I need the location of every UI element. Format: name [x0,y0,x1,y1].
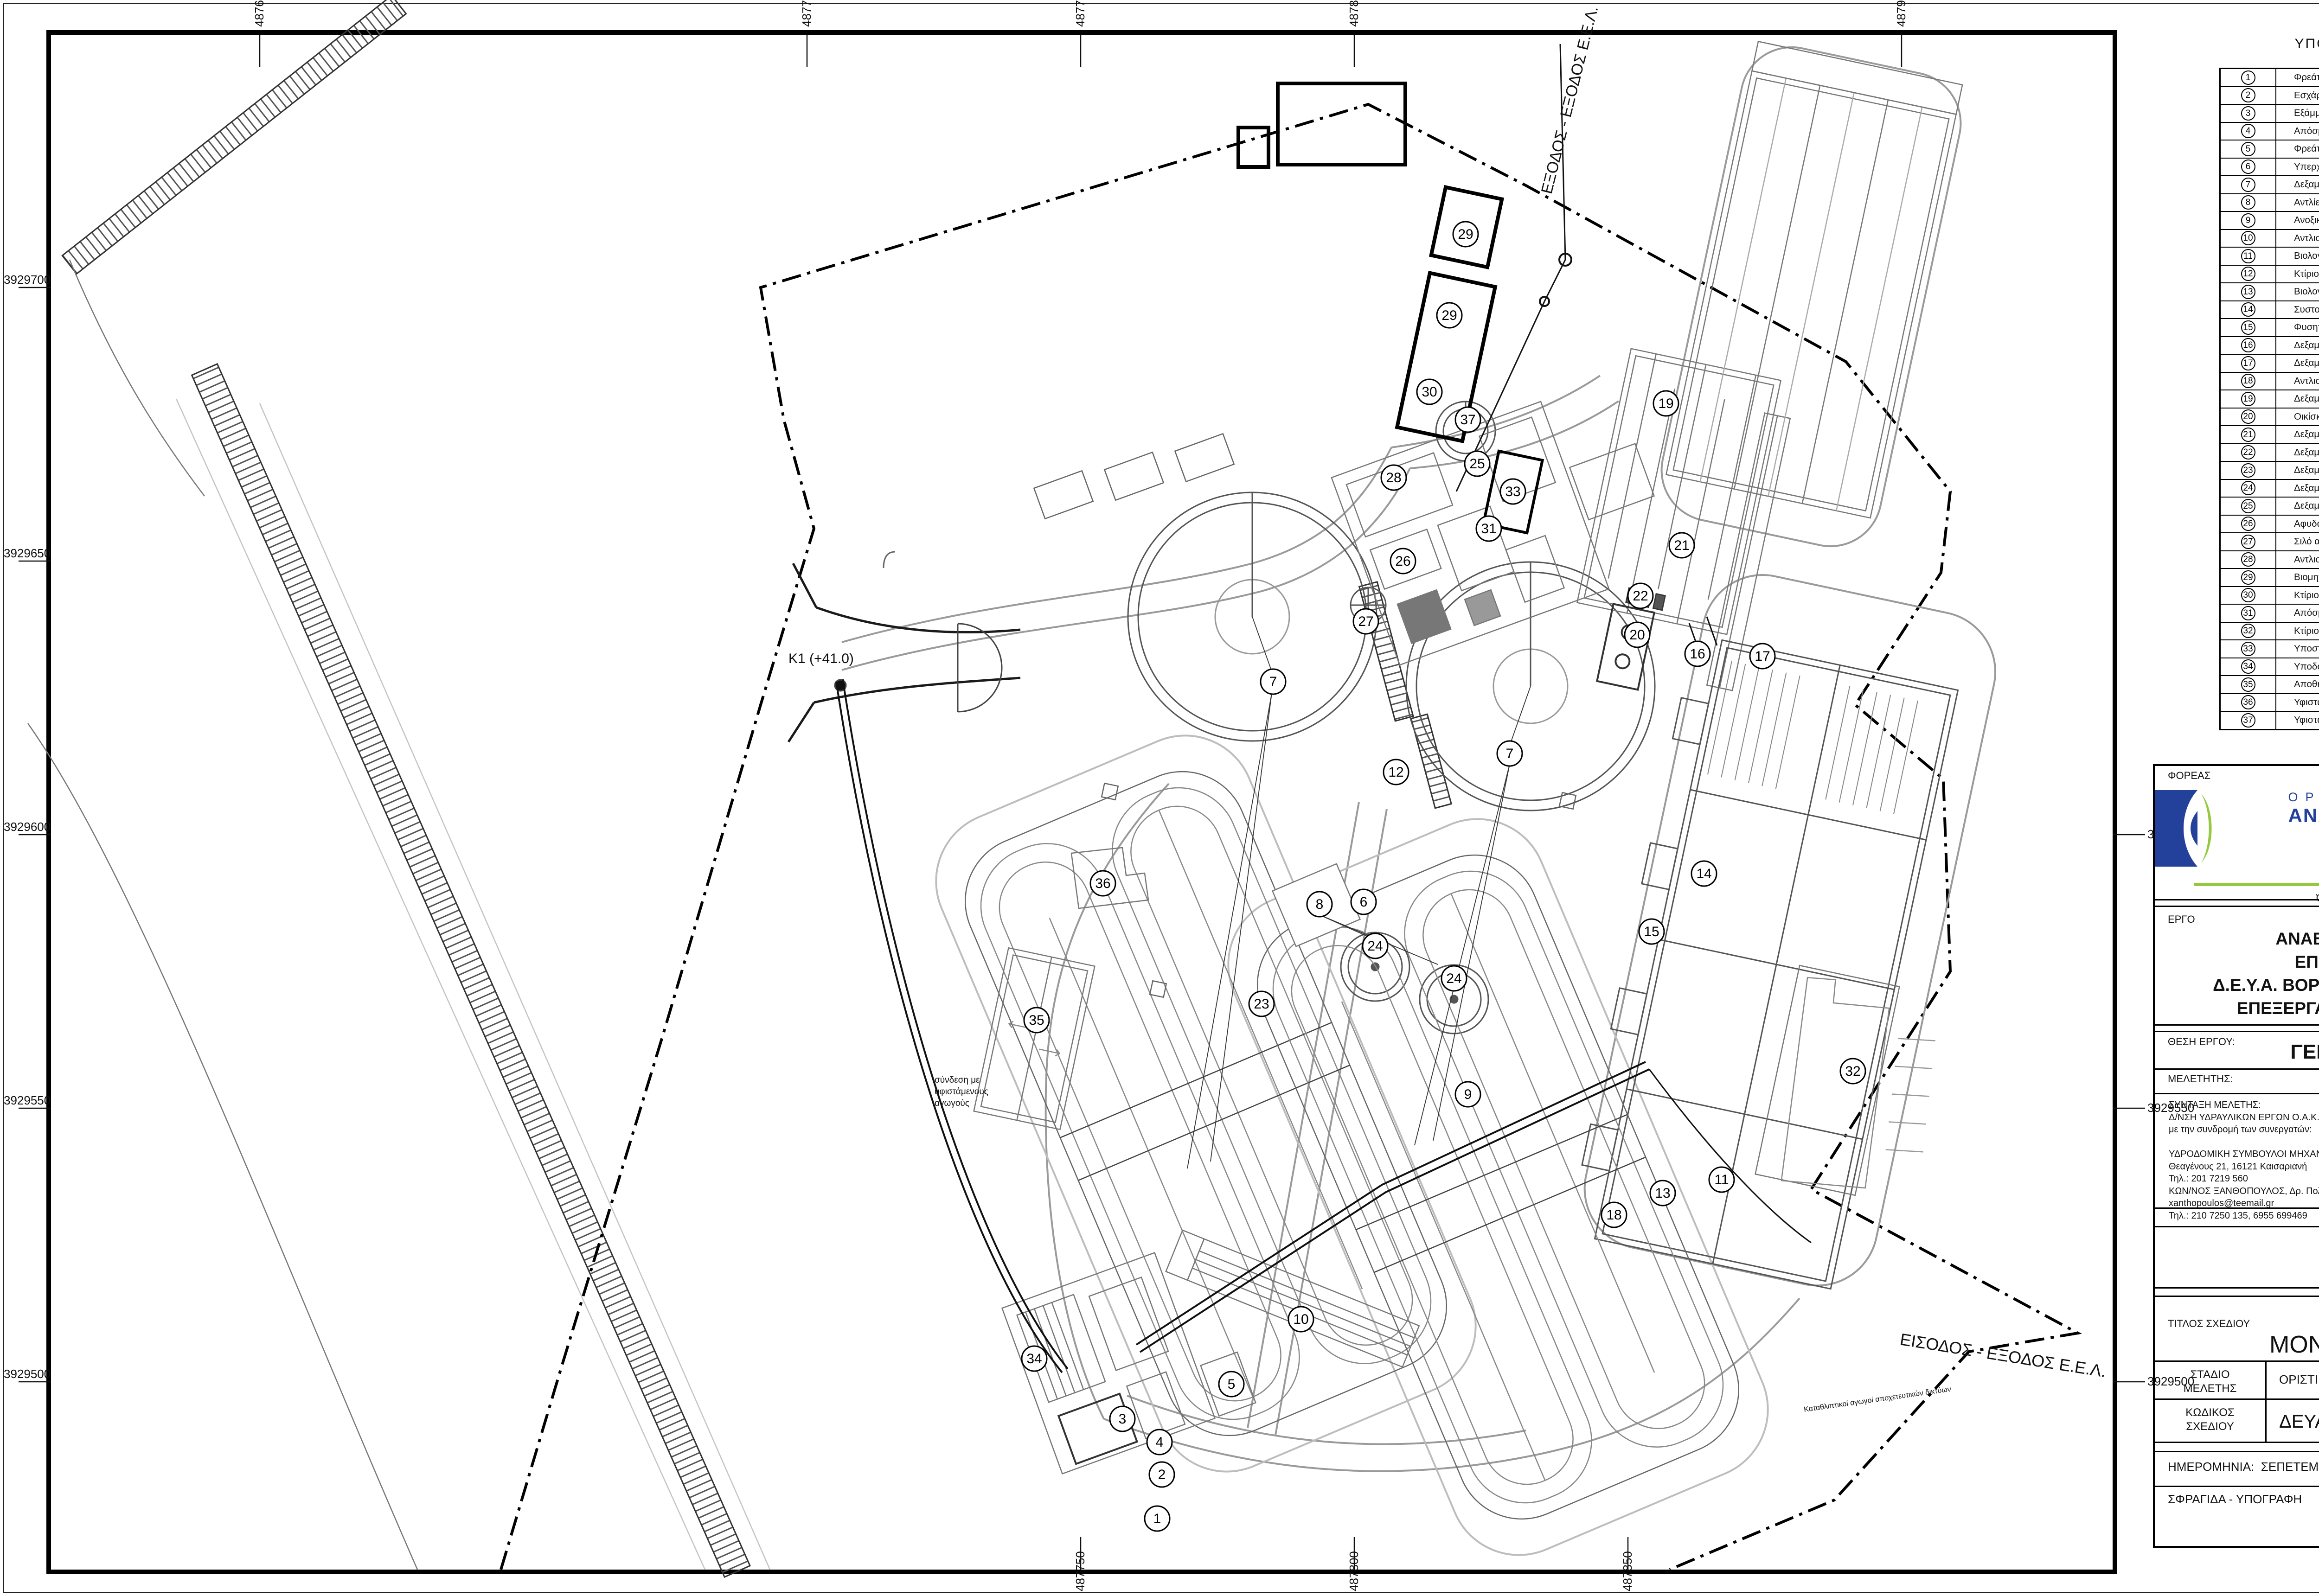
legend-item-number: 18 [2221,373,2276,390]
legend-row: 37Υφιστάμενος πίνακας διανομής χαμηλής τ… [2221,712,2319,729]
legend-item-number: 6 [2221,159,2276,176]
svg-text:35: 35 [1029,1013,1044,1028]
legend-row: 4Απόσμηση προεπεξεργασίας [2221,123,2319,141]
svg-text:17: 17 [1755,649,1770,664]
legend-item-label: Οικίσκος χλωρίωσης [2276,411,2319,422]
grid-coordinate-label: 3929600 [4,820,51,834]
unit-balloon-25: 25 [1465,451,1490,476]
settling-basins-top [1666,41,1962,518]
legend-row: 17Δεξαμενές τελικής καθίζησης [2221,355,2319,373]
legend-item-number: 34 [2221,658,2276,676]
legend-row: 12Κτίριο φυσητήρων και MCC03 [2221,266,2319,284]
unit-balloon-22: 22 [1628,583,1653,608]
stamp-label: ΣΦΡΑΓΙΔΑ - ΥΠΟΓΡΑΦΗ [2168,1492,2302,1507]
site-plan: 4876004877004877504878004879004877504878… [0,0,2319,1596]
legend-item-label: Φυσητήρες, αντλίες διαυγών κτλ. συγκροτή… [2276,322,2319,333]
legend-item-label: Δεξαμενές εξισορρόπησης [2276,179,2319,190]
legend-item-number: 37 [2221,712,2276,729]
legend-item-number: 9 [2221,212,2276,229]
legend-item-label: Αντλιοστάσιο ενδιάμεσης ανύψωσης και MCC… [2276,233,2319,244]
legend-item-label: Δεξαμενή πάχυνσης ιλύος [2276,483,2319,494]
svg-text:22: 22 [1633,588,1648,604]
project-title-line: ΑΝΑΒΑΘΜΙΣΗ ΤΗΣ ΕΓΚΑΤΑΣΤΑΣΗΣ [2155,927,2319,951]
legend-item-number: 13 [2221,283,2276,300]
unit-balloon-7: 7 [1261,669,1286,694]
svg-text:31: 31 [1481,521,1496,536]
location-value: ΓΕΡΑΝΙ ΔΗΜΟΥ ΠΛΑΤΑΝΙΑ [2155,1041,2319,1064]
legend-item-label: Δεξαμενή και αντλιοστάσιο διαυγών [2276,447,2319,458]
building-35 [974,948,1095,1130]
legend-item-number: 4 [2221,123,2276,140]
foreas-label: ΦΟΡΕΑΣ [2168,770,2210,782]
legend-item-number: 33 [2221,640,2276,658]
legend-item-label: Αφυδάτωση [2276,518,2319,530]
legend-item-label: Βιολογικός αντιδραστήρας MBR [2276,286,2319,297]
unit-balloon-3: 3 [1110,1406,1135,1431]
grid-coordinate-label: 487900 [1894,0,1908,27]
svg-text:8: 8 [1316,897,1324,912]
organization-logo-row: ΟΡΓΑΝΙΣΜΟΣ ΑΝΑΠΤΥΞΗΣ ΚΡΗΤΗΣ Α.Ε. [2155,790,2319,827]
unit-balloon-15: 15 [1639,919,1664,944]
svg-text:29: 29 [1441,308,1457,323]
legend-row: 18Αντλιοστάσιο ανακυκλοφορίας και περίσσ… [2221,373,2319,391]
date-row: ΗΜΕΡΟΜΗΝΙΑ: ΣΕΠΕΤΕΜΒΡΙΟΣ 2019 [2168,1460,2319,1474]
legend-item-number: 5 [2221,140,2276,158]
legend-item-number: 35 [2221,676,2276,693]
legend-item-number: 31 [2221,605,2276,622]
legend-item-label: Υφιστάμενο φρεάτιο μερισμού (προς κατεδά… [2276,697,2319,708]
svg-text:24: 24 [1446,971,1461,986]
legend-item-label: Συστοιχίες MBR [2276,304,2319,315]
legend-row: 21Δεξαμενή χλωρίωσης MBR [2221,426,2319,444]
grid-coordinate-label: 487750 [1073,0,1087,27]
legend-item-label: Απόσμηση προεπεξεργασίας [2276,126,2319,137]
legend-row: 25Δεξαμενή ομογενοποίησης [2221,498,2319,516]
svg-text:18: 18 [1606,1207,1621,1223]
legend-row: 30Κτίριο Αποθήκης (υφιστάμενο) [2221,587,2319,605]
legend-item-label: Εσχάρωση και MCC01 [2276,90,2319,101]
legend-item-label: Δεξαμενή γενικής χλωρίωσης [2276,393,2319,404]
unit-balloon-26: 26 [1390,549,1416,574]
unit-balloon-29: 29 [1437,303,1462,328]
unit-balloon-8: 8 [1307,892,1332,917]
legend-item-number: 1 [2221,69,2276,86]
unit-balloon-23: 23 [1249,991,1274,1016]
legend-item-number: 2 [2221,87,2276,104]
unit-balloon-16: 16 [1685,641,1710,666]
svg-text:7: 7 [1269,674,1277,689]
unit-balloon-7: 7 [1497,741,1522,766]
oak-logo-icon [2155,790,2215,867]
svg-text:3: 3 [1119,1411,1127,1427]
drawing-title-1: ΓΕΝΙΚΗ ΔΙΑΤΑΞΗ - [2155,1300,2319,1328]
code-label: ΚΩΔΙΚΟΣΣΧΕΔΙΟΥ [2155,1406,2265,1434]
svg-text:27: 27 [1358,614,1373,629]
legend-title: ΥΠΟΜΝΗΜΑ ΜΟΝΑΔΩΝ ΕΠΕΞΕΡΓΑΣΙΑΣ [2219,36,2319,52]
legend-item-label: Φρεάτιο εισόδου [2276,72,2319,83]
legend-row: 34Υποδοχή προϊόντων καθαρισμού αποχετευτ… [2221,658,2319,677]
unit-balloon-28: 28 [1381,465,1406,490]
unit-balloon-19: 19 [1653,391,1678,416]
unit-balloon-9: 9 [1455,1082,1480,1107]
eisodos-label: ΕΙΣΟΔΟΣ - ΕΞΟΔΟΣ Ε.Ε.Λ. [1899,1329,2108,1381]
legend-item-number: 20 [2221,409,2276,426]
unit-balloon-17: 17 [1750,644,1775,669]
svg-text:10: 10 [1293,1312,1308,1327]
grid-coordinate-label: 3929500 [4,1367,51,1381]
legend-item-number: 32 [2221,623,2276,640]
project-title-line: Δ.Ε.Υ.Α. ΒΟΡΕΙΟΥ ΑΞΟΝΑ ΧΑΝΙΩΝ ΓΙΑ ΑΝΑΚΤΗ… [2155,974,2319,997]
legend-item-number: 26 [2221,516,2276,533]
legend-item-number: 17 [2221,355,2276,372]
grid-coordinate-label: 3929550 [4,1093,51,1107]
legend-item-number: 10 [2221,230,2276,247]
legend-item-number: 36 [2221,694,2276,711]
svg-text:19: 19 [1658,396,1673,411]
svg-text:30: 30 [1422,384,1437,400]
legend-row: 31Απόσμηση αφυδάτωσης [2221,605,2319,623]
legend-panel: ΥΠΟΜΝΗΜΑ ΜΟΝΑΔΩΝ ΕΠΕΞΕΡΓΑΣΙΑΣ 1Φρεάτιο ε… [2219,36,2319,730]
unit-balloon-5: 5 [1219,1372,1244,1397]
grid-coordinate-label: 3929650 [4,546,51,560]
internal-roads [842,38,2006,1577]
svg-text:14: 14 [1696,866,1711,881]
project-title-line: ΕΠΕΞΕΡΓΑΣΙΑΣ ΛΥΜΑΤΩΝ ΤΗΣ [2155,951,2319,974]
legend-item-label: Υποσταθμός μέσης τάσης [2276,643,2319,654]
legend-row: 33Υποσταθμός μέσης τάσης [2221,640,2319,658]
svg-text:34: 34 [1026,1351,1042,1366]
coordinate-grid: 4876004877004877504878004879004877504878… [4,0,2194,1591]
legend-item-number: 27 [2221,533,2276,550]
legend-item-number: 28 [2221,551,2276,568]
legend-item-label: Αντλιοστάσιο στραγγιδίων [2276,554,2319,565]
grid-coordinate-label: 487750 [1073,1551,1087,1591]
legend-row: 27Σιλό ασβέστη [2221,533,2319,551]
legend-item-number: 15 [2221,319,2276,336]
legend-row: 2Εσχάρωση και MCC01 [2221,87,2319,105]
svg-text:12: 12 [1388,765,1403,780]
legend-row: 26Αφυδάτωση [2221,516,2319,534]
legend-item-number: 22 [2221,444,2276,461]
unit-balloon-14: 14 [1691,861,1717,886]
legend-item-number: 21 [2221,426,2276,443]
oxidation-ditches-23 [945,752,1467,1456]
grid-coordinate-label: 3929700 [4,273,51,287]
legend-row: 28Αντλιοστάσιο στραγγιδίων [2221,551,2319,569]
legend-item-label: Δεξαμενές τελικής καθίζησης [2276,358,2319,369]
approved-label: ΘΕΩΡΗΘΗΚΕ: [2155,1210,2319,1223]
grid-coordinate-label: 487850 [1621,1551,1634,1591]
stage-value: ΟΡΙΣΤΙΚΗ ΜΕΛΕΤΗ [2279,1373,2319,1387]
legend-item-label: Κτίριο φυσητήρων και MCC03 [2276,268,2319,280]
meletitis-label: ΜΕΛΕΤΗΤΗΣ: [2168,1073,2233,1085]
grid-coordinate-label: 487700 [800,0,814,27]
connect-note-1: σύνδεση με [935,1075,980,1085]
org-address: Όαση Βαρυπέτρου Χανίων, τηλ.: 28210 2920… [2155,892,2319,904]
unit-balloon-11: 11 [1709,1167,1734,1192]
svg-text:23: 23 [1254,996,1269,1012]
legend-row: 36Υφιστάμενο φρεάτιο μερισμού (προς κατε… [2221,694,2319,712]
org-name-line2: ΑΝΑΠΤΥΞΗΣ ΚΡΗΤΗΣ Α.Ε. [2288,804,2319,827]
legend-item-label: Υποδοχή προϊόντων καθαρισμού αποχετευτικ… [2276,661,2319,672]
legend-item-number: 8 [2221,194,2276,211]
drawing-sheet: 4876004877004877504878004879004877504878… [0,0,2319,1596]
svg-text:37: 37 [1460,412,1475,428]
unit-balloon-20: 20 [1625,622,1650,647]
legend-row: 11Βιολογικός αντιδραστήρας (συμβατικής ε… [2221,248,2319,266]
approved-name: ΠΑΤΡΕΛΑΚΗΣ ΜΑΡΚΟΣ [2155,1263,2319,1275]
legend-item-number: 7 [2221,176,2276,193]
svg-text:9: 9 [1464,1087,1472,1102]
legend-row: 8Αντλίες εκκένωσης δεξαμενών εξισορρόπησ… [2221,194,2319,212]
legend-item-label: Δεξαμενές εξισορρόπησης MBR [2276,340,2319,351]
legend-table: 1Φρεάτιο εισόδου2Εσχάρωση και MCC013Εξάμ… [2219,68,2319,730]
dewatering-cluster [1332,376,1678,665]
legend-item-label: Αντλίες εκκένωσης δεξαμενών εξισορρόπηση… [2276,197,2319,208]
legend-item-label: Βιολογικός αντιδραστήρας (συμβατικής επε… [2276,250,2319,262]
unit-balloon-6: 6 [1351,889,1376,914]
legend-row: 7Δεξαμενές εξισορρόπησης [2221,176,2319,194]
unit-balloon-31: 31 [1476,516,1501,541]
approved-by: Ο Δ/ΝΤΗΣ ΥΔΡΑΥΛΙΚΩΝ ΕΡΓΩΝ Ο.Α.Κ. Α.Ε. [2155,1230,2319,1242]
svg-text:7: 7 [1506,746,1514,761]
unit-balloon-12: 12 [1384,760,1409,785]
legend-item-number: 11 [2221,248,2276,265]
k1-label: K1 (+41.0) [788,651,854,666]
legend-item-number: 24 [2221,480,2276,497]
external-roads [28,0,1451,1577]
legend-item-label: Υφιστάμενος πίνακας διανομής χαμηλής τάσ… [2276,715,2319,726]
unit-balloon-18: 18 [1602,1202,1627,1227]
project-title-line: ΕΠΕΞΕΡΓΑΣΜΕΝΩΝ ΛΥΜΑΤΩΝ ΓΙΑ ΑΡΔΕΥΣΗ [2155,997,2319,1020]
svg-text:29: 29 [1458,227,1473,242]
svg-text:15: 15 [1644,924,1659,939]
connect-note-2: υφιστάμενους [935,1087,988,1097]
legend-row: 15Φυσητήρες, αντλίες διαυγών κτλ. συγκρο… [2221,319,2319,337]
title-block: ΦΟΡΕΑΣ ΟΡΓΑΝΙΣΜΟΣ ΑΝΑΠΤΥΞΗΣ ΚΡΗΤΗΣ Α.Ε. … [2153,764,2319,1548]
legend-row: 29Βιομηχανικό νερό (υφιστάμενο) [2221,569,2319,587]
svg-text:21: 21 [1674,538,1689,553]
code-value: ΔΕΥΑΒΑ-DR-00-GA-01 MBR [2279,1411,2319,1432]
grid-coordinate-label: 487600 [252,0,266,27]
connect-note-3: αγωγούς [935,1098,969,1108]
legend-item-number: 30 [2221,587,2276,604]
legend-item-number: 19 [2221,390,2276,408]
approved-title: ΠΟΛΙΤΙΚΟΣ ΜΗΧΑΝΙΚΟΣ [2155,1276,2319,1288]
legend-row: 6Υπερχειλιστής εκτροπής [2221,159,2319,177]
svg-text:6: 6 [1360,894,1368,910]
legend-row: 32Κτίριο Ελέγχου Λειτουργίας (SCADA) και… [2221,623,2319,641]
unit-balloon-34: 34 [1022,1346,1047,1371]
ergo-label: ΕΡΓΟ [2168,913,2195,926]
legend-item-label: Αντλιοστάσιο ανακυκλοφορίας και περίσσει… [2276,376,2319,387]
unit-balloon-32: 32 [1840,1059,1865,1084]
legend-row: 5Φρεάτιο μέτρησης παροχής [2221,140,2319,159]
legend-row: 23Δεξαμενή σταθεροποίησης ιλύος [2221,462,2319,480]
svg-text:36: 36 [1095,876,1110,891]
svg-text:26: 26 [1395,554,1410,569]
svg-text:16: 16 [1690,646,1705,662]
grid-coordinate-label: 487800 [1347,1551,1361,1591]
svg-text:4: 4 [1156,1435,1164,1450]
legend-row: 35Αποθήκη/συνεργείο [2221,676,2319,694]
unit-balloon-35: 35 [1024,1008,1049,1033]
grid-coordinate-label: 487800 [1347,0,1361,27]
pipelines [836,44,1811,1373]
unit-balloons: 1234510346778923242425262728312929303719… [1022,222,1865,1531]
legend-row: 13Βιολογικός αντιδραστήρας MBR [2221,283,2319,301]
legend-row: 19Δεξαμενή γενικής χλωρίωσης [2221,390,2319,409]
legend-row: 20Οικίσκος χλωρίωσης [2221,409,2319,427]
intermediate-pump-station [1166,1230,1419,1367]
unit-balloon-21: 21 [1669,533,1694,558]
legend-row: 10Αντλιοστάσιο ενδιάμεσης ανύψωσης και M… [2221,230,2319,248]
legend-item-label: Απόσμηση αφυδάτωσης [2276,607,2319,619]
site-boundary [501,104,2078,1570]
logo-green-bar [2194,883,2319,886]
legend-item-label: Δεξαμενή ομογενοποίησης [2276,500,2319,511]
unit-balloon-27: 27 [1353,609,1378,634]
author-block: ΣΥΝΤΑΞΗ ΜΕΛΕΤΗΣ:Δ/ΝΣΗ ΥΔΡΑΥΛΙΚΩΝ ΕΡΓΩΝ Ο… [2169,1099,2319,1222]
legend-item-number: 23 [2221,462,2276,479]
legend-item-label: Φρεάτιο μέτρησης παροχής [2276,143,2319,154]
chlorination-units [1577,349,1790,690]
legend-item-label: Ανοξική δεξαμενή (υφιστάμενη ως προς το … [2276,215,2319,226]
legend-row: 14Συστοιχίες MBR [2221,301,2319,319]
unit-balloon-29: 29 [1453,222,1478,247]
unit-balloon-1: 1 [1145,1506,1170,1531]
legend-item-number: 14 [2221,301,2276,319]
svg-text:20: 20 [1629,627,1645,643]
legend-item-label: Κτίριο Ελέγχου Λειτουργίας (SCADA) και ε… [2276,626,2319,637]
legend-item-label: Εξάμμωση / απολίπανση [2276,108,2319,119]
legend-row: 16Δεξαμενές εξισορρόπησης MBR [2221,337,2319,355]
pressure-main-note: Καταθλιπτικοί αγωγοί αποχετευτικών δικτύ… [1803,1385,1952,1414]
legend-item-number: 3 [2221,105,2276,122]
unit-balloon-36: 36 [1090,871,1115,896]
legend-row: 9Ανοξική δεξαμενή (υφιστάμενη ως προς το… [2221,212,2319,230]
org-name-line1: ΟΡΓΑΝΙΣΜΟΣ [2288,790,2319,804]
unit-balloon-37: 37 [1455,407,1480,432]
svg-text:24: 24 [1367,938,1383,954]
drawing-title-2: ΜΟΝΑΔΕΣ ΕΠΕΞΕΡΓΑΣΙΑΣ [2155,1331,2319,1359]
svg-text:2: 2 [1158,1467,1166,1482]
legend-item-number: 25 [2221,498,2276,515]
svg-text:25: 25 [1469,456,1485,472]
unit-balloon-10: 10 [1288,1307,1313,1332]
svg-text:1: 1 [1153,1511,1161,1526]
unit-balloon-4: 4 [1147,1430,1172,1455]
legend-item-number: 16 [2221,337,2276,354]
svg-text:28: 28 [1386,470,1401,485]
unit-balloon-24: 24 [1363,933,1388,958]
stage-label: ΣΤΑΔΙΟΜΕΛΕΤΗΣ [2155,1368,2265,1396]
oxidation-ditches-9 [1237,835,1759,1539]
legend-item-label: Σιλό ασβέστη [2276,536,2319,547]
legend-row: 1Φρεάτιο εισόδου [2221,69,2319,87]
legend-item-number: 29 [2221,569,2276,586]
legend-row: 3Εξάμμωση / απολίπανση [2221,105,2319,123]
svg-text:5: 5 [1228,1377,1236,1392]
legend-item-label: Αποθήκη/συνεργείο [2276,679,2319,690]
legend-row: 22Δεξαμενή και αντλιοστάσιο διαυγών [2221,444,2319,462]
svg-text:32: 32 [1845,1064,1860,1079]
legend-row: 24Δεξαμενή πάχυνσης ιλύος [2221,480,2319,498]
legend-item-number: 12 [2221,266,2276,283]
svg-text:33: 33 [1505,484,1520,499]
svg-text:13: 13 [1655,1186,1670,1201]
unit-balloon-30: 30 [1417,379,1442,404]
unit-balloon-13: 13 [1650,1181,1675,1206]
legend-item-label: Δεξαμενή σταθεροποίησης ιλύος [2276,465,2319,476]
unit-balloon-33: 33 [1500,479,1525,504]
svg-text:11: 11 [1714,1172,1729,1187]
unit-balloon-2: 2 [1149,1462,1174,1487]
unit-balloon-24: 24 [1441,966,1467,991]
legend-item-label: Κτίριο Αποθήκης (υφιστάμενο) [2276,590,2319,601]
legend-item-label: Δεξαμενή χλωρίωσης MBR [2276,429,2319,440]
legend-item-label: Βιομηχανικό νερό (υφιστάμενο) [2276,572,2319,583]
legend-item-label: Υπερχειλιστής εκτροπής [2276,161,2319,172]
